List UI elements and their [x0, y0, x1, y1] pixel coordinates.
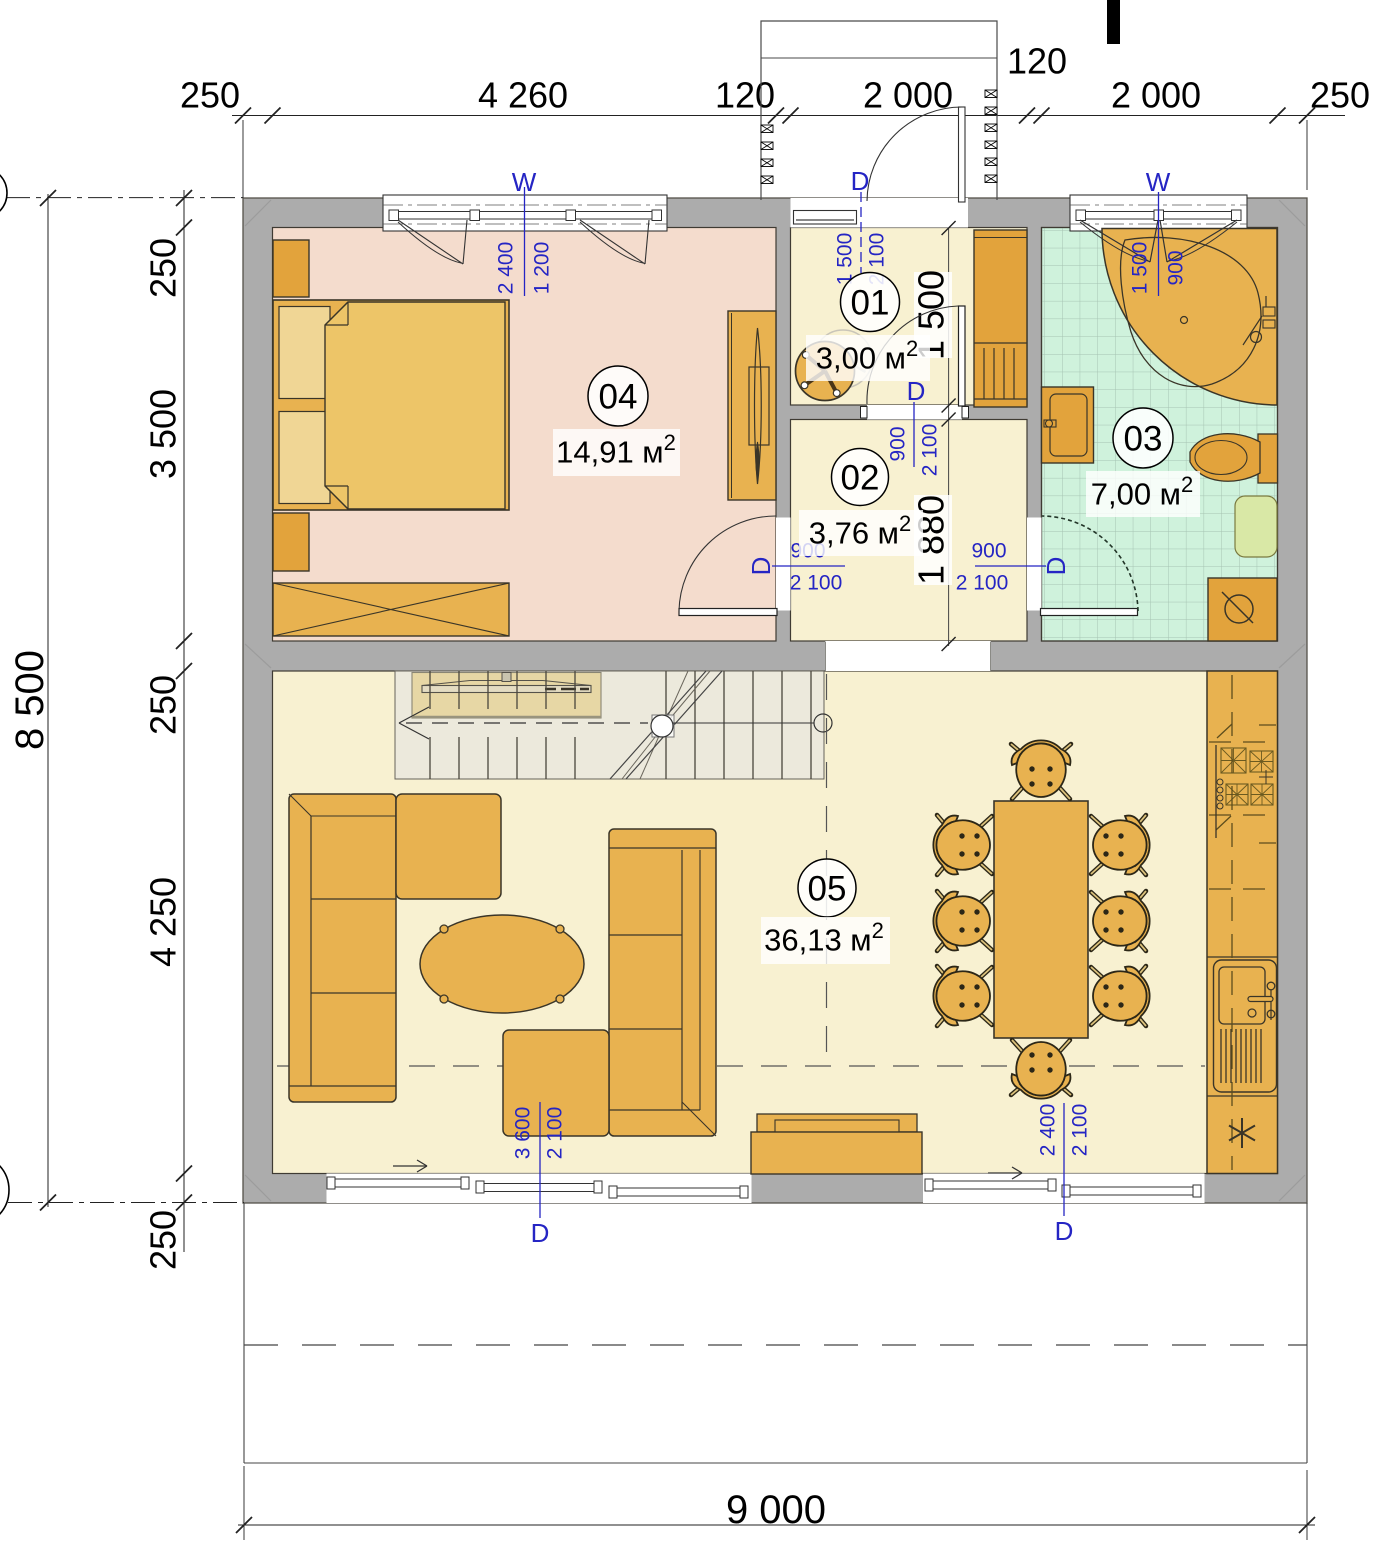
- svg-text:3 500: 3 500: [143, 389, 184, 479]
- svg-text:120: 120: [715, 75, 775, 116]
- svg-text:05: 05: [808, 870, 847, 909]
- svg-text:D: D: [746, 557, 776, 576]
- svg-text:2 400: 2 400: [1037, 1104, 1060, 1157]
- svg-text:250: 250: [143, 238, 184, 298]
- svg-text:D: D: [531, 1218, 550, 1248]
- svg-text:2 400: 2 400: [495, 242, 518, 295]
- svg-text:8 500: 8 500: [8, 650, 52, 750]
- svg-text:2 000: 2 000: [1111, 75, 1201, 116]
- svg-text:900: 900: [1165, 250, 1188, 285]
- svg-text:2 100: 2 100: [956, 572, 1009, 595]
- svg-text:4 260: 4 260: [478, 75, 568, 116]
- svg-text:04: 04: [599, 378, 638, 417]
- svg-text:2 100: 2 100: [1069, 1104, 1092, 1157]
- svg-text:01: 01: [851, 284, 890, 323]
- svg-text:3,00 м2: 3,00 м2: [816, 336, 919, 376]
- svg-text:900: 900: [971, 540, 1006, 563]
- svg-text:120: 120: [1007, 41, 1067, 82]
- svg-text:02: 02: [841, 459, 880, 498]
- svg-text:36,13 м2: 36,13 м2: [764, 918, 884, 958]
- svg-text:1 500: 1 500: [1129, 242, 1152, 295]
- svg-text:2 100: 2 100: [919, 424, 942, 477]
- svg-text:D: D: [1055, 1216, 1074, 1246]
- svg-text:250: 250: [1310, 75, 1370, 116]
- svg-text:3 600: 3 600: [512, 1107, 535, 1160]
- svg-text:1 200: 1 200: [531, 242, 554, 295]
- svg-text:250: 250: [143, 675, 184, 735]
- svg-text:7,00 м2: 7,00 м2: [1091, 472, 1194, 512]
- svg-text:03: 03: [1124, 420, 1163, 459]
- svg-text:3,76 м2: 3,76 м2: [809, 511, 912, 551]
- svg-text:9 000: 9 000: [726, 1488, 826, 1532]
- svg-text:2 100: 2 100: [544, 1107, 567, 1160]
- svg-text:14,91 м2: 14,91 м2: [556, 430, 676, 470]
- svg-text:4 250: 4 250: [143, 877, 184, 967]
- svg-text:2 100: 2 100: [790, 572, 843, 595]
- svg-text:900: 900: [887, 426, 910, 461]
- svg-text:250: 250: [180, 75, 240, 116]
- svg-text:250: 250: [143, 1210, 184, 1270]
- svg-text:D: D: [851, 166, 870, 196]
